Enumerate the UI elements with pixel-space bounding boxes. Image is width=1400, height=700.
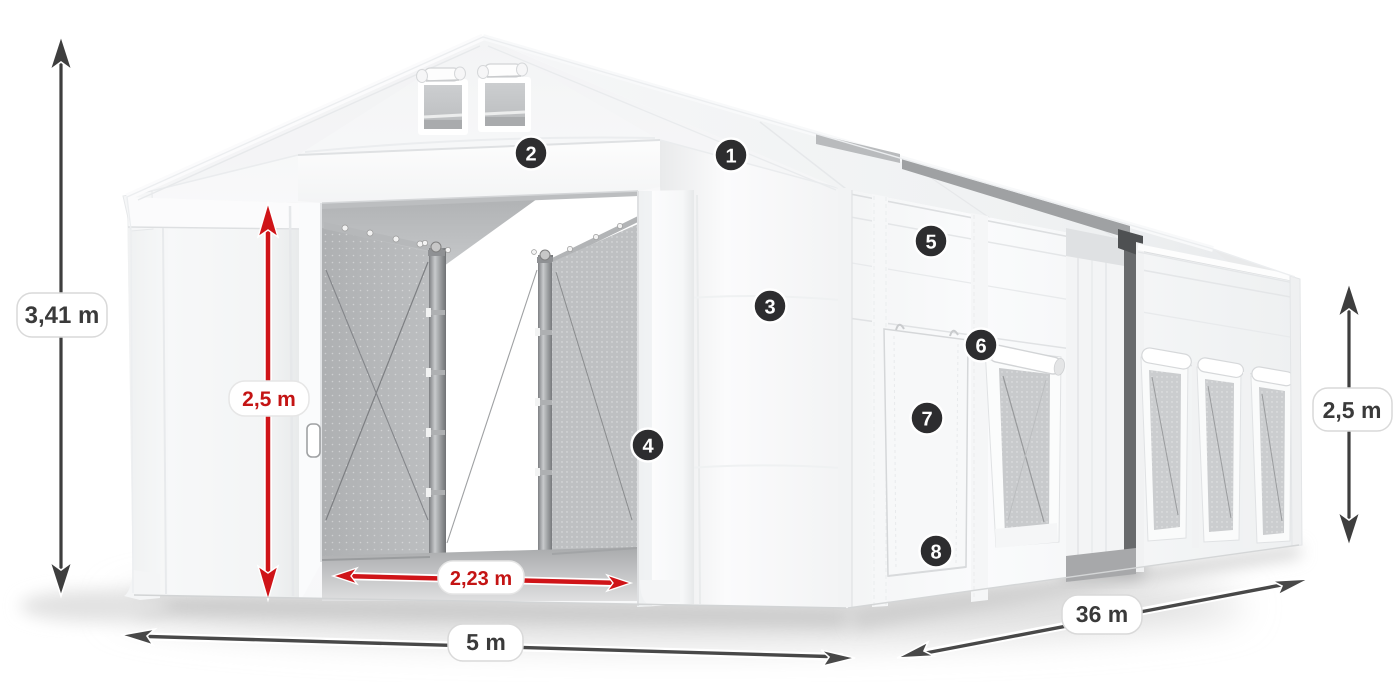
svg-text:36 m: 36 m <box>1076 601 1128 627</box>
svg-text:4: 4 <box>642 436 654 458</box>
svg-text:2: 2 <box>525 144 536 166</box>
svg-text:2,23 m: 2,23 m <box>450 568 512 590</box>
svg-text:2,5 m: 2,5 m <box>242 388 296 411</box>
svg-text:6: 6 <box>975 336 986 358</box>
svg-text:1: 1 <box>725 146 736 168</box>
svg-text:7: 7 <box>921 409 932 431</box>
svg-text:5: 5 <box>925 232 936 254</box>
svg-text:8: 8 <box>930 542 941 564</box>
svg-text:3: 3 <box>764 297 775 319</box>
svg-text:5 m: 5 m <box>466 629 506 655</box>
svg-text:2,5 m: 2,5 m <box>1323 397 1382 423</box>
svg-text:3,41 m: 3,41 m <box>25 302 100 329</box>
